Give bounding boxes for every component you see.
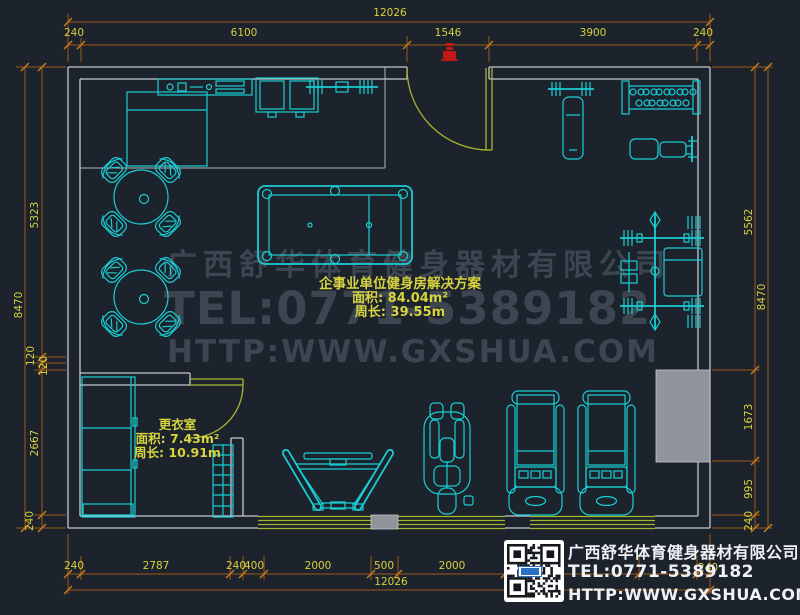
dim-bottom-total: 12026 xyxy=(374,577,407,588)
dim-left-3: 120 xyxy=(39,356,50,376)
footer-tel: TEL:0771-5389182 xyxy=(568,562,754,582)
barbell-rack xyxy=(306,80,378,94)
dim-left-4: 2667 xyxy=(30,430,41,457)
dim-top-5: 240 xyxy=(693,28,713,39)
dim-bottom-6: 500 xyxy=(374,561,394,572)
round-table-chairs-1 xyxy=(98,154,185,241)
dim-bottom-4: 400 xyxy=(244,561,264,572)
dim-top-4: 3900 xyxy=(580,28,607,39)
dim-left-5: 240 xyxy=(25,511,36,531)
situp-board xyxy=(286,453,390,510)
entrance-marker-icon xyxy=(441,43,458,61)
dim-right-3: 995 xyxy=(744,479,755,499)
dim-right-4: 240 xyxy=(744,511,755,531)
reception-desk xyxy=(127,78,318,166)
dim-bottom-2: 2787 xyxy=(143,561,170,572)
changing-room-perimeter: 周长: 10.91m xyxy=(130,446,225,460)
qr-logo xyxy=(518,566,542,577)
treadmill-1 xyxy=(507,391,564,515)
treadmill-2 xyxy=(578,391,635,515)
cad-floorplan-viewport: 广西舒华体育健身器材有限公司 TEL:0771-5389182 HTTP:WWW… xyxy=(0,0,800,615)
dim-top-total: 12026 xyxy=(373,8,406,19)
solution-annotation: 企事业单位健身房解决方案 面积: 84.04m² 周长: 39.55m xyxy=(310,277,490,320)
dim-bottom-5: 2000 xyxy=(305,561,332,572)
dumbbell-rack xyxy=(622,81,700,114)
changing-room-name: 更衣室 xyxy=(130,418,225,432)
dim-right-2: 1673 xyxy=(744,404,755,431)
bench-with-barbell xyxy=(548,82,594,159)
dim-right-1: 5562 xyxy=(744,209,755,236)
solution-title: 企事业单位健身房解决方案 xyxy=(310,277,490,292)
dim-top-1: 240 xyxy=(64,28,84,39)
dim-bottom-1: 240 xyxy=(64,561,84,572)
lockers xyxy=(82,377,137,517)
solution-area: 面积: 84.04m² xyxy=(310,292,490,306)
power-rack xyxy=(620,212,704,330)
flat-bench xyxy=(630,136,697,162)
dim-top-2: 6100 xyxy=(231,28,258,39)
changing-room-annotation: 更衣室 面积: 7.43m² 周长: 10.91m xyxy=(130,418,225,459)
footer-url: HTTP:WWW.GXSHUA.COM xyxy=(568,585,800,604)
dim-bottom-7: 2000 xyxy=(439,561,466,572)
dim-left-total: 8470 xyxy=(14,292,25,319)
pool-table xyxy=(258,186,412,264)
dim-left-1: 5323 xyxy=(30,202,41,229)
entrance-door xyxy=(407,68,492,150)
window-band xyxy=(258,515,655,530)
window-pillar xyxy=(371,515,398,529)
changing-room-area: 面积: 7.43m² xyxy=(130,432,225,446)
dim-top-3: 1546 xyxy=(435,28,462,39)
wall-niche xyxy=(656,370,710,462)
dim-left-2: 120 xyxy=(26,346,37,366)
footer-company: 广西舒华体育健身器材有限公司 xyxy=(568,539,799,563)
dim-right-total: 8470 xyxy=(757,284,768,311)
exercise-machine xyxy=(424,403,473,514)
round-table-chairs-2 xyxy=(98,254,185,341)
solution-perimeter: 周长: 39.55m xyxy=(310,306,490,320)
